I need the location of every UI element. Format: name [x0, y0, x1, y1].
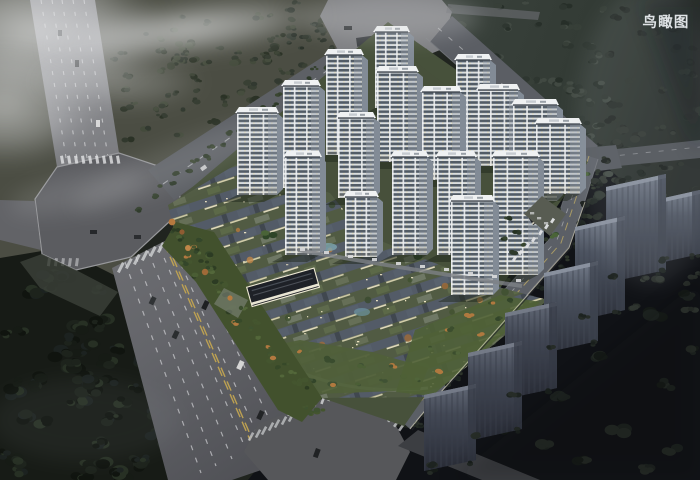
svg-text:鸟瞰图: 鸟瞰图	[642, 13, 689, 31]
